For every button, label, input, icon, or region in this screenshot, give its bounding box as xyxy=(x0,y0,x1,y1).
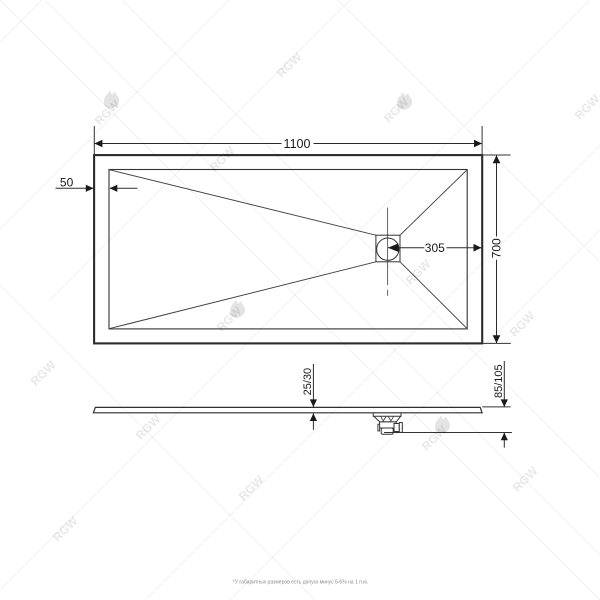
svg-text:25/30: 25/30 xyxy=(302,368,314,396)
svg-text:305: 305 xyxy=(425,241,445,255)
svg-text:1100: 1100 xyxy=(284,137,311,151)
svg-text:*У габаритных размеров есть до: *У габаритных размеров есть допуск минус… xyxy=(233,579,368,585)
svg-text:50: 50 xyxy=(60,176,74,190)
